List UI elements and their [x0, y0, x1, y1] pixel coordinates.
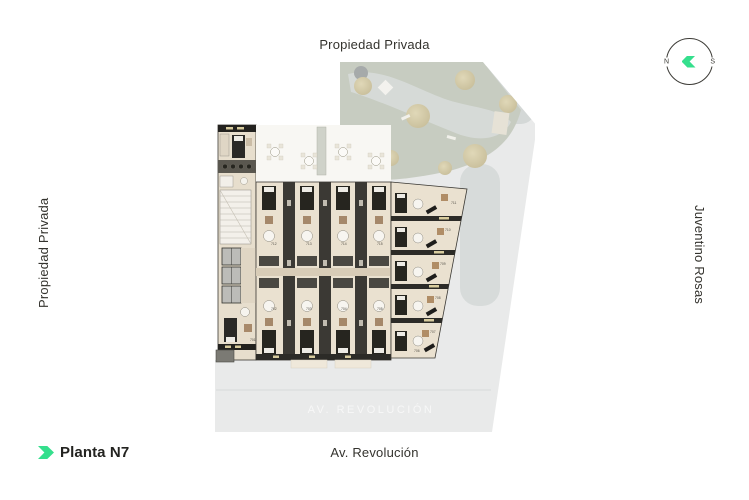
unit-label: 704: [341, 307, 347, 311]
unit-label: 703: [306, 307, 312, 311]
unit-label: 701: [250, 338, 256, 342]
compass-north-label: N: [662, 57, 671, 66]
legend-arrow-icon: [38, 446, 54, 459]
unit-label: 715: [377, 242, 383, 246]
unit-label: 712: [271, 242, 277, 246]
stairs: [220, 190, 251, 244]
unit-label: 710: [445, 228, 451, 232]
unit-label: 711: [451, 201, 457, 205]
unit-label: 705: [377, 307, 383, 311]
unit-label: 716: [250, 168, 256, 172]
compass-south-label: S: [708, 57, 717, 66]
label-juventino-rosas: Juventino Rosas: [692, 192, 707, 317]
terrace: [256, 125, 391, 182]
unit-label: 706: [414, 349, 420, 353]
compass-needle-icon: [682, 56, 696, 68]
label-propiedad-privada-left: Propiedad Privada: [36, 185, 51, 320]
apartment-block-center: [256, 182, 391, 368]
unit-label: 707: [430, 330, 436, 334]
compass: N S: [666, 38, 713, 85]
floor-plan: AV. REVOLUCIÓN: [213, 60, 535, 434]
sidewalk-watermark: AV. REVOLUCIÓN: [308, 403, 435, 416]
unit-label: 702: [271, 307, 277, 311]
unit-label: 708: [435, 296, 441, 300]
unit-label: 714: [341, 242, 347, 246]
plan-title: Planta N7: [60, 444, 129, 461]
plan-legend: Planta N7: [38, 444, 129, 461]
elevators: [222, 248, 256, 303]
unit-label: 713: [306, 242, 312, 246]
building-core: [216, 125, 256, 362]
label-propiedad-privada-top: Propiedad Privada: [0, 37, 749, 52]
page: Propiedad Privada Propiedad Privada Juve…: [0, 0, 749, 500]
unit-label: 709: [440, 262, 446, 266]
